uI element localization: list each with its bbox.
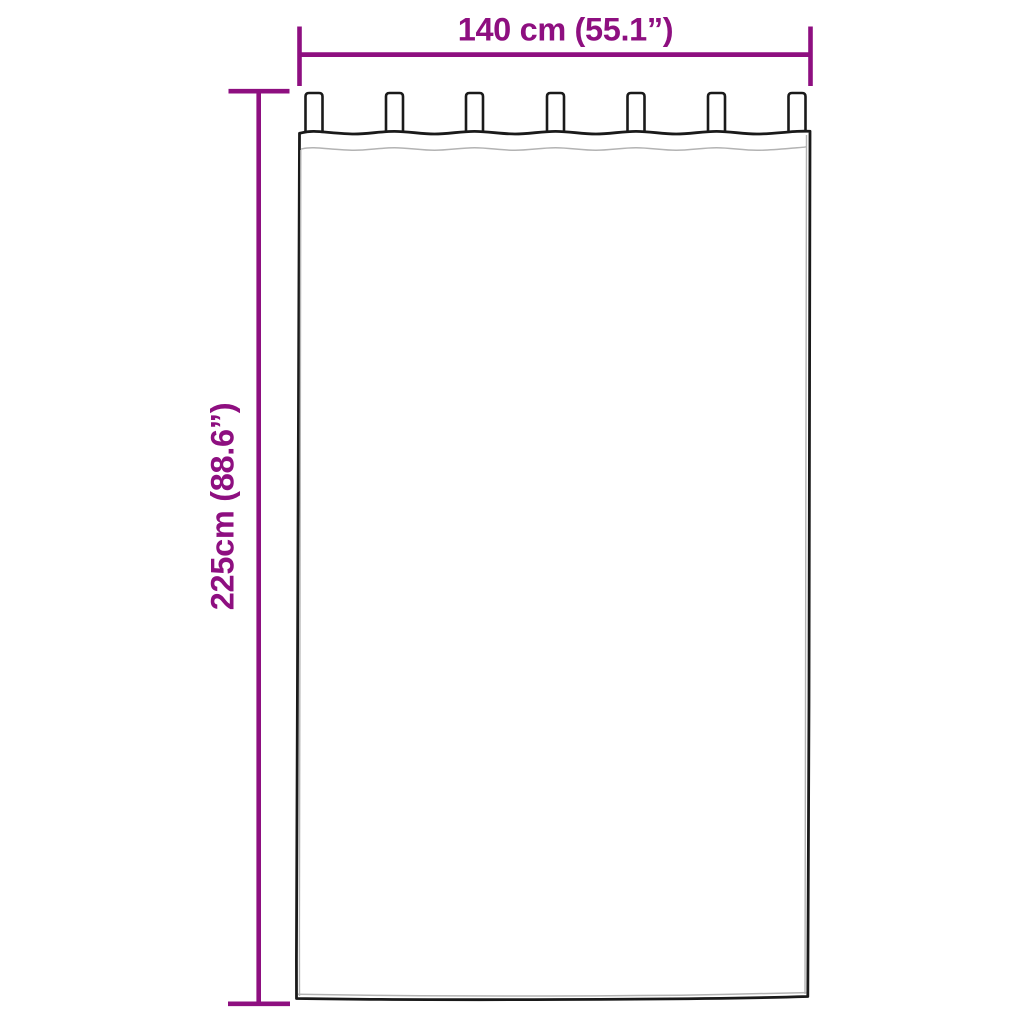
svg-text:140 cm (55.1”): 140 cm (55.1”): [458, 11, 674, 47]
svg-text:225cm (88.6”): 225cm (88.6”): [205, 403, 241, 610]
